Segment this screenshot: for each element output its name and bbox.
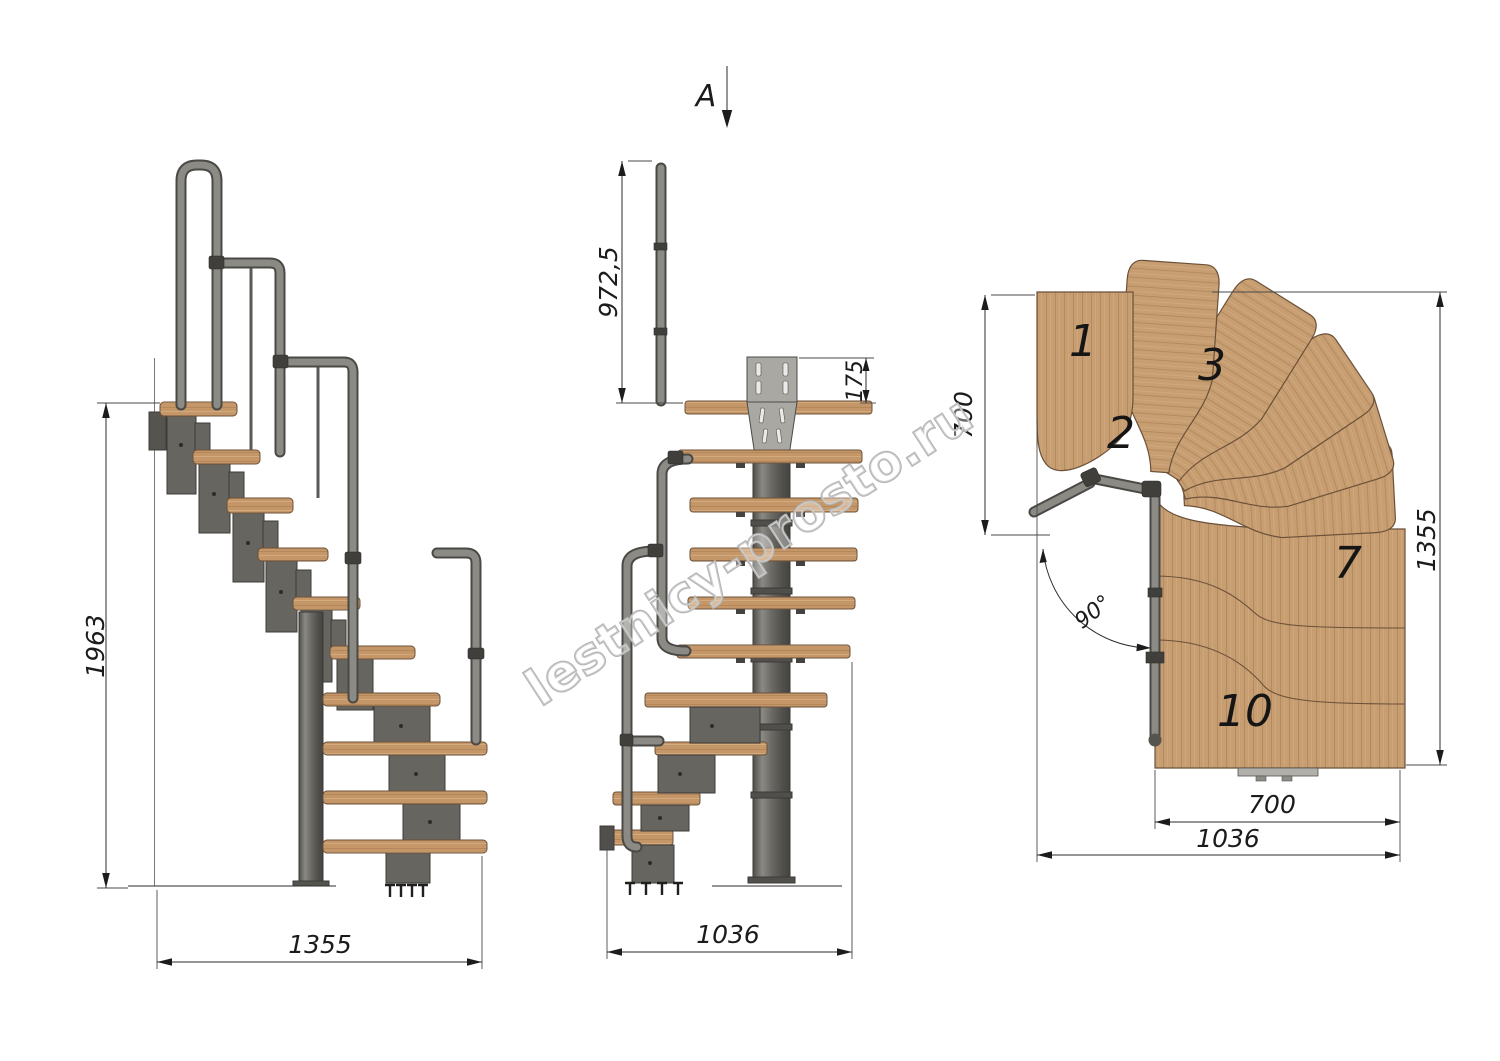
side-column-base	[293, 881, 329, 886]
view-direction-arrow: A	[694, 66, 732, 128]
rail-elbow-icon	[1142, 481, 1161, 497]
tread-label-10: 10	[1217, 686, 1273, 737]
rail-clamp-icon	[273, 355, 288, 368]
dim-overall-height: 1963	[81, 614, 110, 678]
dim-plan-total-width: 1036	[1196, 824, 1260, 853]
drawing-canvas: 1963 1355 A	[0, 0, 1500, 1061]
staircase-technical-drawing: 1963 1355 A	[0, 0, 1500, 1061]
rail-clamp-icon	[648, 544, 663, 557]
front-anchor-bolts	[625, 883, 683, 895]
rail-clamp-icon	[668, 451, 683, 464]
dim-lower-flight-width: 700	[1248, 790, 1296, 819]
dim-plate-height: 175	[843, 360, 868, 402]
plan-winder-treads	[1037, 259, 1397, 542]
rail-clamp-icon	[468, 648, 484, 659]
side-anchor-bolts	[385, 885, 428, 897]
side-elevation-view: 1963 1355	[81, 165, 487, 969]
side-support-column	[299, 612, 323, 884]
dim-front-width: 1036	[696, 920, 760, 949]
tread-label-3: 3	[1198, 340, 1226, 391]
dim-handrail-height: 972,5	[594, 246, 623, 318]
tread-label-1: 1	[1069, 316, 1097, 367]
dim-turn-angle: 90°	[1070, 591, 1116, 635]
plan-view: 1 2 3 7 10	[949, 259, 1447, 862]
wall-bracket	[149, 412, 166, 450]
rail-clamp-icon	[345, 552, 361, 564]
dim-side-length: 1355	[288, 930, 352, 959]
watermark-text: lestnicy-prosto.ru	[515, 385, 983, 717]
dim-plan-length: 1355	[1412, 508, 1441, 572]
plan-base-plate	[1238, 768, 1318, 781]
tread-label-2: 2	[1107, 408, 1135, 459]
rail-end-cap-icon	[1149, 734, 1162, 747]
rail-clamp-icon	[209, 256, 224, 269]
front-mount-plate	[747, 357, 797, 456]
rail-clamp-icon	[620, 734, 633, 746]
tread-label-7: 7	[1334, 538, 1362, 589]
view-label-A: A	[694, 79, 717, 114]
